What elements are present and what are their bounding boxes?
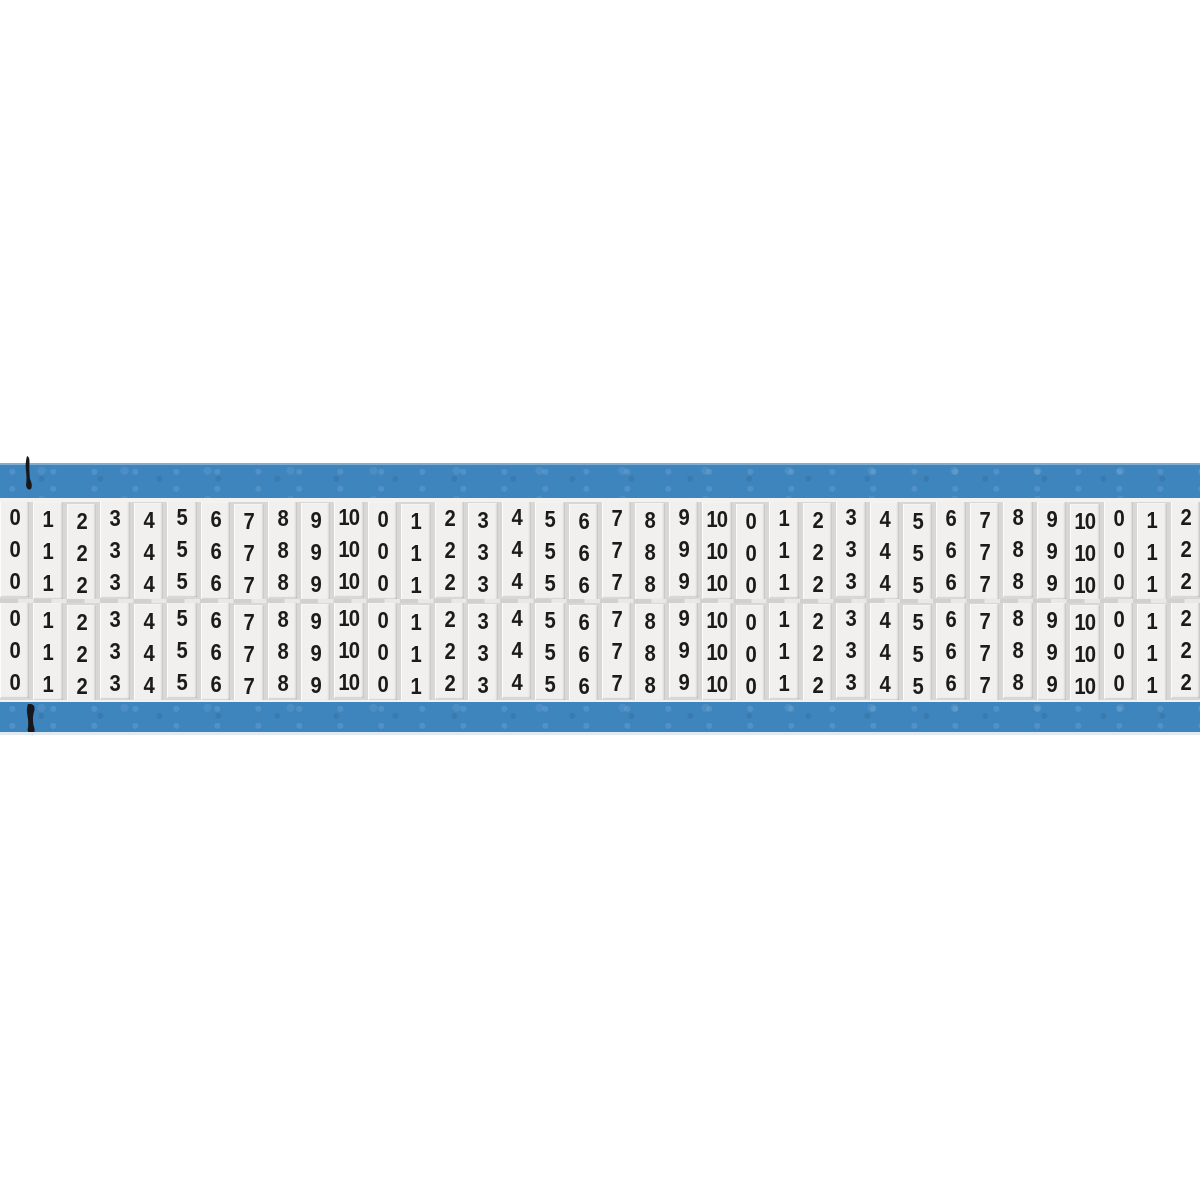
marker-number: 8	[1005, 634, 1031, 666]
marker-number: 1	[1139, 568, 1165, 599]
marker-number: 6	[570, 569, 596, 599]
marker-number: 6	[938, 534, 964, 566]
marker-number: 4	[136, 504, 162, 536]
marker-number: 9	[303, 536, 329, 568]
marker-strip: 222	[1171, 502, 1200, 597]
marker-strip: 111	[401, 605, 430, 700]
marker-number: 3	[838, 502, 864, 533]
marker-number: 2	[69, 606, 95, 638]
marker-strip: 555	[167, 502, 196, 597]
marker-strip: 333	[100, 603, 129, 699]
marker-number: 1	[403, 638, 429, 670]
marker-number: 1	[771, 502, 797, 534]
marker-number: 7	[236, 670, 262, 700]
marker-number: 7	[972, 605, 998, 637]
marker-number: 4	[871, 503, 897, 535]
marker-number: 3	[102, 534, 128, 566]
marker-number: 8	[637, 605, 663, 637]
marker-number: 0	[2, 634, 28, 666]
marker-number: 3	[102, 502, 128, 534]
marker-number: 10	[1072, 505, 1098, 537]
marker-number: 5	[905, 569, 931, 599]
marker-number: 7	[604, 566, 630, 598]
marker-number: 2	[437, 603, 463, 635]
marker-number: 2	[1172, 565, 1198, 597]
marker-number: 10	[1072, 537, 1098, 569]
label-section-bottom: 0001112223334445556667778889991010100001…	[0, 603, 1200, 700]
marker-number: 3	[470, 637, 496, 669]
marker-number: 5	[905, 670, 931, 700]
marker-strip: 555	[903, 605, 932, 700]
marker-number: 6	[938, 502, 964, 534]
marker-number: 0	[738, 505, 764, 537]
marker-number: 5	[905, 537, 931, 569]
marker-strip: 444	[502, 502, 531, 597]
marker-number: 10	[1072, 569, 1098, 599]
marker-number: 9	[1039, 604, 1065, 636]
marker-number: 7	[972, 504, 998, 536]
marker-number: 5	[905, 505, 931, 537]
marker-number: 3	[102, 667, 128, 699]
marker-number: 8	[1005, 603, 1031, 634]
marker-number: 9	[303, 669, 329, 700]
marker-strip: 999	[301, 604, 330, 700]
marker-number: 9	[671, 565, 697, 597]
marker-number: 9	[671, 666, 697, 698]
marker-number: 9	[1039, 636, 1065, 668]
marker-number: 0	[2, 565, 28, 597]
marker-number: 2	[69, 537, 95, 569]
marker-number: 3	[470, 568, 496, 599]
marker-number: 7	[236, 606, 262, 638]
marker-number: 8	[1005, 533, 1031, 565]
marker-number: 5	[169, 502, 195, 533]
marker-number: 4	[136, 568, 162, 599]
marker-strip: 101010	[1070, 605, 1099, 700]
marker-number: 4	[871, 636, 897, 668]
marker-number: 1	[35, 503, 61, 535]
wire-marker-card: 0001112223334445556667778889991010100001…	[0, 463, 1200, 732]
marker-number: 6	[938, 635, 964, 667]
marker-number: 10	[704, 668, 730, 700]
marker-number: 7	[604, 635, 630, 667]
marker-number: 3	[470, 504, 496, 536]
marker-number: 0	[370, 668, 396, 700]
marker-number: 4	[871, 567, 897, 599]
marker-number: 6	[202, 668, 228, 700]
marker-strip: 111	[1137, 503, 1166, 599]
marker-strip: 101010	[334, 502, 363, 597]
marker-strip: 666	[201, 603, 230, 700]
marker-number: 3	[838, 533, 864, 565]
marker-number: 8	[269, 502, 295, 534]
marker-number: 0	[1105, 566, 1131, 598]
marker-number: 0	[370, 567, 396, 599]
marker-strip: 666	[936, 603, 965, 699]
marker-number: 5	[169, 565, 195, 597]
marker-number: 10	[1072, 606, 1098, 638]
marker-number: 10	[336, 565, 362, 597]
marker-number: 9	[671, 634, 697, 666]
marker-number: 9	[671, 502, 697, 533]
marker-strip: 999	[669, 502, 698, 597]
marker-strip: 333	[100, 502, 129, 598]
marker-strip: 111	[769, 603, 798, 699]
label-area: 0001112223334445556667778889991010100001…	[0, 498, 1200, 702]
marker-number: 8	[637, 568, 663, 599]
marker-strip: 222	[67, 504, 96, 599]
marker-number: 7	[972, 536, 998, 568]
marker-number: 6	[938, 667, 964, 699]
marker-number: 4	[136, 669, 162, 700]
marker-number: 0	[2, 533, 28, 565]
marker-number: 2	[804, 669, 830, 700]
marker-strip: 101010	[334, 603, 363, 698]
product-photo-stage: 0001112223334445556667778889991010100001…	[0, 0, 1200, 1200]
marker-number: 8	[269, 603, 295, 635]
marker-number: 5	[537, 567, 563, 599]
marker-number: 1	[403, 606, 429, 638]
marker-number: 2	[69, 505, 95, 537]
marker-number: 9	[303, 605, 329, 637]
marker-strip: 111	[401, 504, 430, 599]
marker-strip: 000	[368, 502, 397, 599]
marker-number: 2	[437, 534, 463, 566]
marker-number: 10	[1072, 638, 1098, 670]
marker-number: 8	[1005, 502, 1031, 533]
marker-strip: 444	[870, 502, 899, 599]
card-top-blue-band	[0, 463, 1200, 500]
marker-number: 0	[738, 670, 764, 700]
marker-strip: 888	[1003, 603, 1032, 698]
marker-number: 6	[570, 670, 596, 700]
marker-strip: 333	[836, 603, 865, 698]
marker-strip: 777	[602, 502, 631, 598]
marker-number: 6	[202, 535, 228, 567]
marker-number: 4	[136, 536, 162, 568]
marker-strip: 333	[468, 503, 497, 599]
marker-number: 7	[604, 667, 630, 699]
marker-number: 4	[503, 634, 529, 666]
marker-number: 10	[336, 666, 362, 698]
marker-number: 0	[2, 502, 28, 533]
marker-strip: 222	[803, 604, 832, 700]
marker-strip: 222	[1171, 603, 1200, 698]
marker-number: 2	[804, 637, 830, 669]
marker-number: 1	[1139, 637, 1165, 669]
marker-number: 8	[269, 667, 295, 699]
marker-number: 8	[637, 669, 663, 700]
marker-number: 0	[738, 606, 764, 638]
marker-number: 2	[69, 569, 95, 599]
marker-number: 7	[604, 534, 630, 566]
marker-number: 9	[1039, 503, 1065, 535]
marker-number: 8	[637, 536, 663, 568]
marker-strip: 666	[201, 502, 230, 599]
marker-number: 0	[370, 535, 396, 567]
marker-strip: 777	[234, 504, 263, 599]
marker-number: 7	[236, 505, 262, 537]
marker-number: 10	[336, 603, 362, 634]
marker-strip: 777	[234, 605, 263, 700]
marker-number: 1	[403, 505, 429, 537]
marker-number: 5	[905, 638, 931, 670]
marker-number: 5	[537, 535, 563, 567]
marker-number: 1	[771, 667, 797, 699]
marker-number: 1	[771, 534, 797, 566]
marker-number: 10	[336, 502, 362, 533]
marker-number: 0	[1105, 534, 1131, 566]
marker-number: 3	[470, 605, 496, 637]
marker-number: 10	[704, 604, 730, 636]
marker-number: 3	[102, 566, 128, 598]
marker-number: 8	[269, 534, 295, 566]
marker-strip: 555	[535, 603, 564, 700]
marker-strip: 101010	[1070, 504, 1099, 599]
marker-number: 0	[370, 503, 396, 535]
marker-number: 0	[370, 604, 396, 636]
marker-number: 10	[704, 503, 730, 535]
marker-number: 1	[771, 635, 797, 667]
marker-strip: 444	[134, 503, 163, 599]
marker-number: 0	[1105, 603, 1131, 635]
marker-strip: 111	[33, 502, 62, 599]
marker-number: 4	[503, 533, 529, 565]
marker-number: 8	[1005, 666, 1031, 698]
marker-number: 9	[1039, 567, 1065, 599]
marker-number: 9	[303, 504, 329, 536]
marker-number: 4	[503, 502, 529, 533]
marker-number: 6	[938, 603, 964, 635]
marker-number: 6	[202, 503, 228, 535]
marker-number: 10	[1072, 670, 1098, 700]
marker-number: 3	[470, 669, 496, 700]
marker-number: 2	[69, 638, 95, 670]
marker-strip: 000	[1104, 502, 1133, 598]
marker-strip: 999	[1037, 603, 1066, 700]
marker-number: 5	[905, 606, 931, 638]
label-section-top: 0001112223334445556667778889991010100001…	[0, 502, 1200, 599]
marker-number: 1	[403, 670, 429, 700]
marker-number: 4	[136, 637, 162, 669]
marker-number: 6	[570, 505, 596, 537]
marker-number: 5	[169, 533, 195, 565]
marker-strip: 999	[301, 503, 330, 599]
marker-strip: 666	[569, 504, 598, 599]
marker-number: 6	[202, 636, 228, 668]
marker-number: 0	[1105, 667, 1131, 699]
marker-number: 8	[637, 637, 663, 669]
marker-number: 6	[202, 567, 228, 599]
marker-number: 1	[771, 566, 797, 598]
marker-number: 0	[738, 569, 764, 599]
marker-number: 4	[503, 666, 529, 698]
marker-number: 2	[804, 504, 830, 536]
marker-number: 5	[169, 634, 195, 666]
marker-number: 6	[938, 566, 964, 598]
marker-number: 3	[102, 635, 128, 667]
marker-number: 2	[437, 635, 463, 667]
marker-strip: 888	[268, 603, 297, 699]
marker-number: 1	[771, 603, 797, 635]
marker-strip: 101010	[702, 502, 731, 599]
marker-strip: 444	[502, 603, 531, 698]
card-drop-shadow	[0, 732, 1200, 735]
marker-number: 1	[1139, 536, 1165, 568]
marker-number: 1	[403, 569, 429, 599]
marker-strip: 222	[803, 503, 832, 599]
marker-number: 9	[1039, 535, 1065, 567]
marker-strip: 000	[0, 502, 29, 597]
marker-strip: 999	[1037, 502, 1066, 599]
marker-number: 0	[1105, 635, 1131, 667]
marker-number: 5	[537, 503, 563, 535]
marker-number: 8	[637, 504, 663, 536]
marker-number: 9	[303, 637, 329, 669]
marker-strip: 111	[769, 502, 798, 598]
marker-number: 7	[972, 669, 998, 700]
marker-strip: 777	[970, 503, 999, 599]
marker-number: 5	[169, 603, 195, 634]
marker-strip: 000	[736, 504, 765, 599]
marker-strip: 000	[736, 605, 765, 700]
marker-number: 3	[838, 634, 864, 666]
marker-number: 1	[35, 567, 61, 599]
marker-strip: 000	[368, 603, 397, 700]
marker-strip: 555	[903, 504, 932, 599]
marker-number: 1	[403, 537, 429, 569]
marker-number: 7	[972, 568, 998, 599]
marker-strip: 888	[635, 604, 664, 700]
marker-strip: 222	[67, 605, 96, 700]
marker-number: 1	[1139, 605, 1165, 637]
marker-number: 8	[269, 635, 295, 667]
marker-number: 3	[470, 536, 496, 568]
marker-number: 6	[570, 606, 596, 638]
marker-strip: 222	[435, 603, 464, 699]
marker-number: 9	[671, 533, 697, 565]
marker-strip: 555	[535, 502, 564, 599]
marker-number: 10	[704, 636, 730, 668]
marker-strip: 000	[0, 603, 29, 698]
marker-strip: 111	[33, 603, 62, 700]
marker-number: 6	[570, 537, 596, 569]
marker-number: 2	[437, 502, 463, 534]
marker-strip: 666	[936, 502, 965, 598]
marker-number: 2	[804, 568, 830, 599]
marker-strip: 888	[635, 503, 664, 599]
marker-strip: 000	[1104, 603, 1133, 699]
marker-strip: 222	[435, 502, 464, 598]
marker-strip: 555	[167, 603, 196, 698]
marker-number: 3	[102, 603, 128, 635]
marker-number: 5	[537, 668, 563, 700]
marker-number: 3	[838, 603, 864, 634]
marker-number: 6	[202, 604, 228, 636]
marker-strip: 666	[569, 605, 598, 700]
marker-number: 5	[537, 636, 563, 668]
marker-number: 1	[35, 604, 61, 636]
marker-number: 0	[738, 638, 764, 670]
marker-number: 7	[236, 638, 262, 670]
marker-strip: 444	[134, 604, 163, 700]
marker-strip: 333	[836, 502, 865, 597]
marker-number: 1	[35, 636, 61, 668]
marker-number: 9	[671, 603, 697, 634]
marker-strip: 999	[669, 603, 698, 698]
marker-number: 7	[236, 569, 262, 599]
marker-number: 1	[1139, 669, 1165, 700]
marker-number: 1	[35, 668, 61, 700]
marker-number: 9	[1039, 668, 1065, 700]
marker-number: 2	[1172, 533, 1198, 565]
marker-number: 2	[437, 566, 463, 598]
marker-number: 2	[1172, 502, 1198, 533]
marker-strip: 444	[870, 603, 899, 700]
marker-number: 0	[2, 603, 28, 634]
marker-number: 4	[871, 604, 897, 636]
marker-number: 5	[169, 666, 195, 698]
marker-number: 7	[236, 537, 262, 569]
marker-number: 2	[804, 536, 830, 568]
marker-number: 10	[336, 533, 362, 565]
marker-number: 9	[303, 568, 329, 599]
marker-strip: 111	[1137, 604, 1166, 700]
marker-number: 4	[503, 603, 529, 634]
marker-number: 2	[1172, 603, 1198, 634]
marker-number: 7	[604, 603, 630, 635]
marker-number: 10	[704, 535, 730, 567]
marker-strip: 333	[468, 604, 497, 700]
marker-number: 7	[604, 502, 630, 534]
marker-number: 1	[1139, 504, 1165, 536]
marker-strip: 101010	[702, 603, 731, 700]
marker-number: 1	[35, 535, 61, 567]
marker-number: 10	[336, 634, 362, 666]
marker-strip: 888	[268, 502, 297, 598]
marker-strip: 888	[1003, 502, 1032, 597]
marker-number: 0	[370, 636, 396, 668]
marker-number: 6	[570, 638, 596, 670]
marker-strip: 777	[970, 604, 999, 700]
marker-number: 4	[871, 668, 897, 700]
marker-number: 7	[972, 637, 998, 669]
marker-number: 10	[704, 567, 730, 599]
marker-number: 5	[537, 604, 563, 636]
marker-number: 2	[437, 667, 463, 699]
marker-number: 2	[804, 605, 830, 637]
marker-number: 8	[1005, 565, 1031, 597]
marker-number: 8	[269, 566, 295, 598]
marker-number: 4	[503, 565, 529, 597]
card-bottom-blue-band	[0, 702, 1200, 734]
marker-number: 0	[738, 537, 764, 569]
marker-number: 0	[2, 666, 28, 698]
marker-number: 2	[1172, 634, 1198, 666]
marker-number: 3	[838, 666, 864, 698]
marker-number: 4	[871, 535, 897, 567]
marker-number: 4	[136, 605, 162, 637]
marker-number: 2	[1172, 666, 1198, 698]
marker-number: 2	[69, 670, 95, 700]
marker-number: 3	[838, 565, 864, 597]
marker-number: 0	[1105, 502, 1131, 534]
marker-strip: 777	[602, 603, 631, 699]
